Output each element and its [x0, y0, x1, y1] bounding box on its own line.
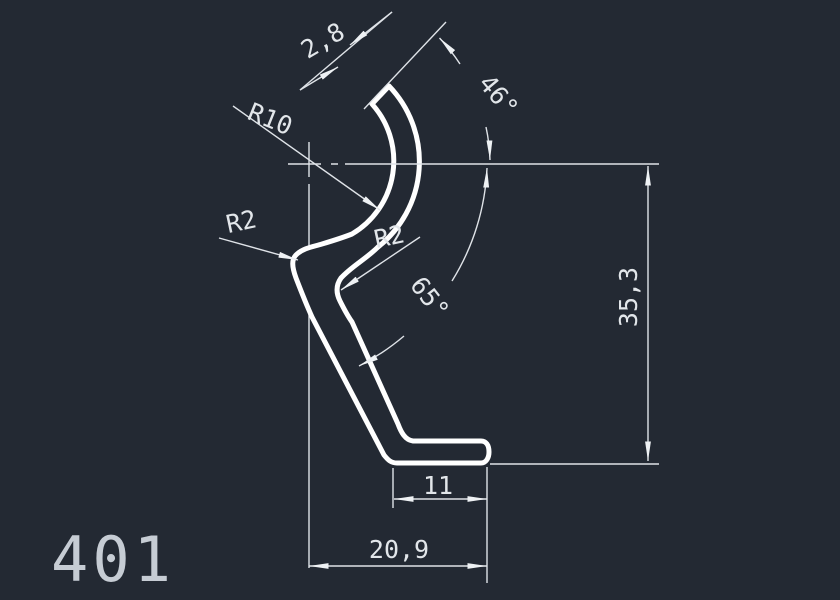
- label-right-fillet: R2: [371, 219, 406, 254]
- label-foot-width: 11: [423, 471, 453, 500]
- label-main-radius: R10: [244, 97, 297, 141]
- label-wall-thickness: 2,8: [296, 17, 350, 65]
- cad-drawing-canvas: 2,8 46° R10 R2 R2 65° 35,3 11 20,9 401: [0, 0, 840, 600]
- extension-line-cap: [364, 22, 446, 109]
- profile-outline: [293, 86, 489, 463]
- dim-leg-angle: [359, 168, 487, 366]
- cad-model-space: 2,8 46° R10 R2 R2 65° 35,3 11 20,9 401: [0, 0, 840, 600]
- label-overall-height: 35,3: [614, 267, 643, 327]
- label-top-angle: 46°: [473, 69, 524, 122]
- label-left-fillet: R2: [223, 204, 258, 239]
- leader-left-fillet: [219, 238, 298, 260]
- label-overall-width: 20,9: [369, 535, 429, 564]
- label-leg-angle: 65°: [404, 271, 455, 324]
- part-number: 401: [51, 523, 175, 596]
